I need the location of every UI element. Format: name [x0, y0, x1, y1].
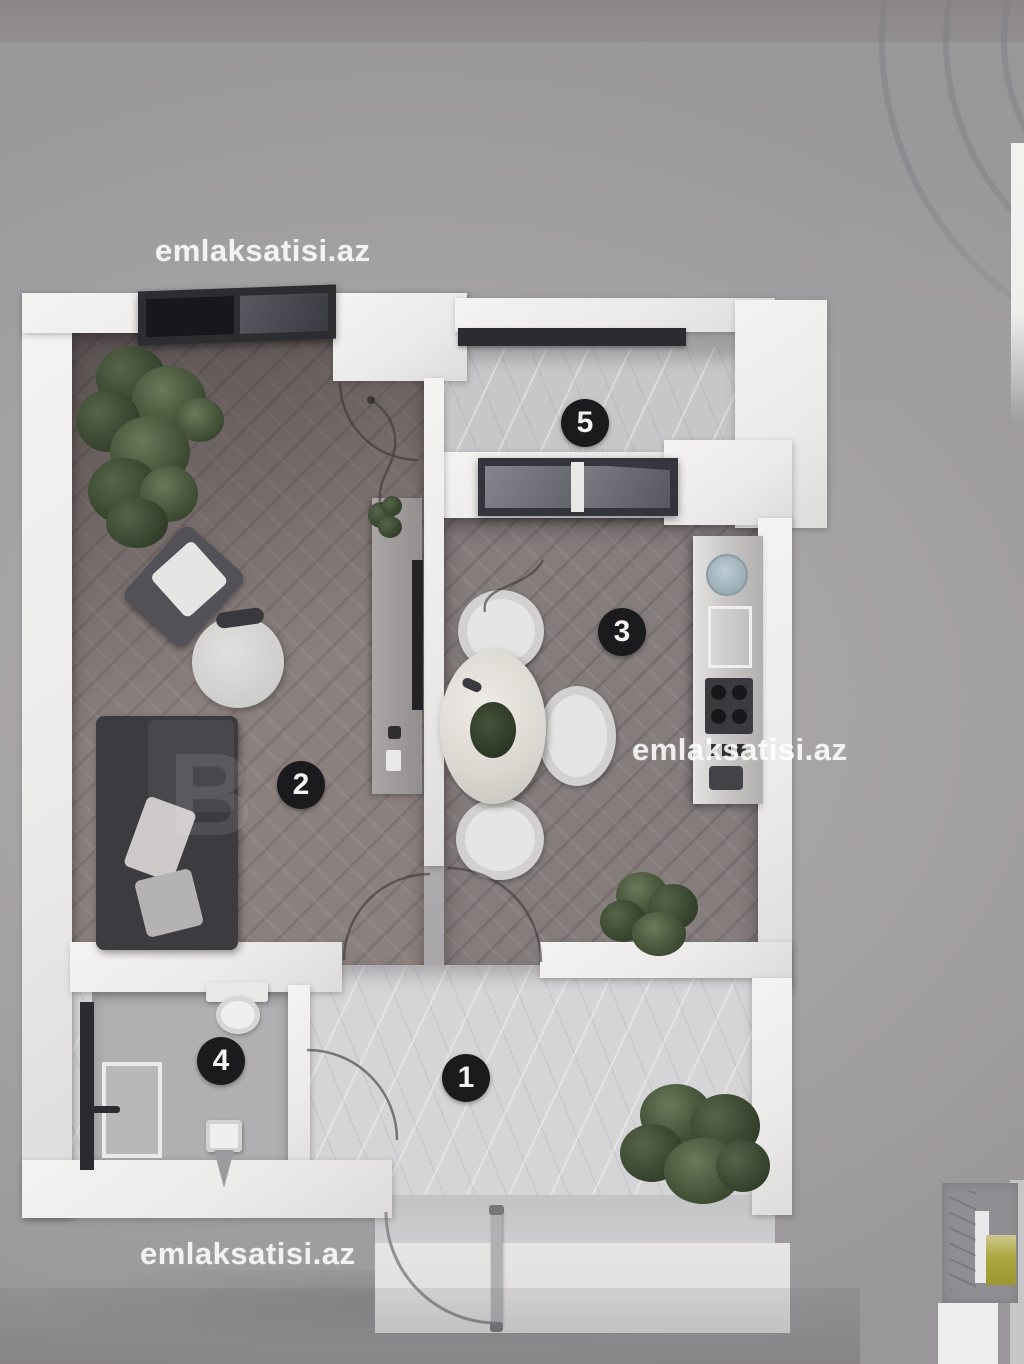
watermark: emlaksatisi.az — [140, 1236, 356, 1272]
room-badge-1: 1 — [442, 1054, 490, 1102]
faint-watermark-letter: B — [168, 736, 253, 854]
plant — [612, 1080, 778, 1222]
kitchen-door-arc — [447, 868, 541, 962]
watermark: emlaksatisi.az — [632, 732, 848, 768]
pendant-cord-living — [371, 400, 395, 508]
bathroom-door-arc — [307, 1050, 397, 1140]
balcony-door-arc — [340, 382, 418, 460]
room-badge-2: 2 — [277, 761, 325, 809]
bottom-shade-band — [0, 1288, 860, 1364]
room-badge-3: 3 — [598, 608, 646, 656]
watermark: emlaksatisi.az — [155, 233, 371, 269]
pendant-cord-kitchen — [485, 560, 543, 612]
door-swing-arcs — [0, 0, 1024, 1364]
living-door-arc — [344, 874, 430, 960]
floor-plan-photo: 1 2 3 4 5 B emlaksatisi.az emlaksatisi.a… — [0, 0, 1024, 1364]
room-badge-4: 4 — [197, 1037, 245, 1085]
room-badge-5: 5 — [561, 399, 609, 447]
